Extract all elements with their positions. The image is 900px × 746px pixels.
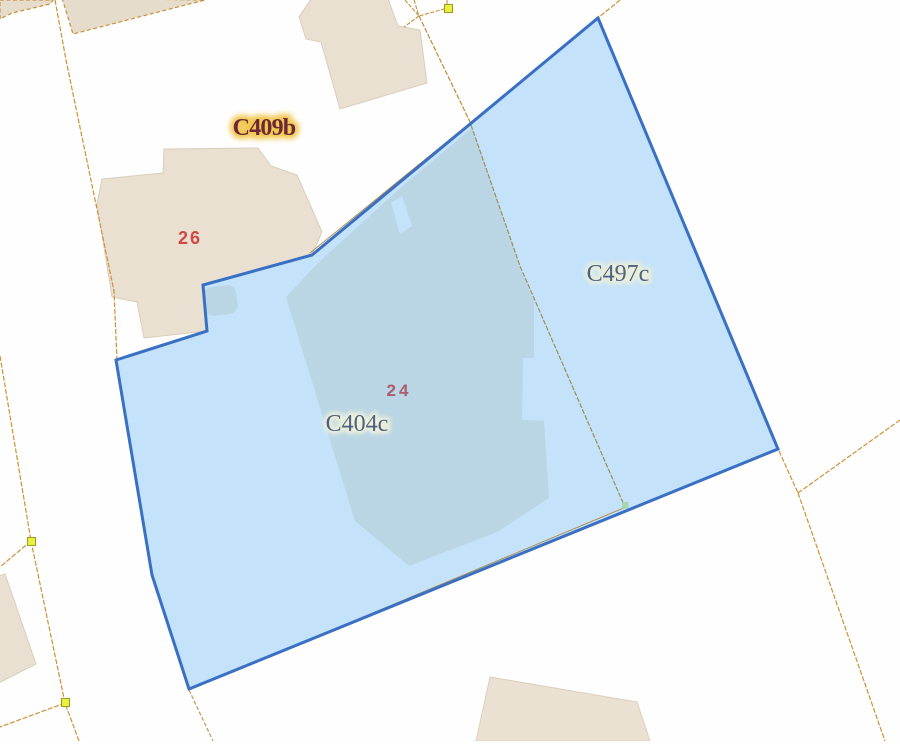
- svg-text:26: 26: [178, 228, 202, 248]
- svg-text:C497c: C497c: [587, 261, 650, 287]
- svg-text:C409b: C409b: [233, 115, 296, 141]
- svg-text:C404c: C404c: [326, 411, 389, 437]
- svg-text:24: 24: [387, 381, 412, 400]
